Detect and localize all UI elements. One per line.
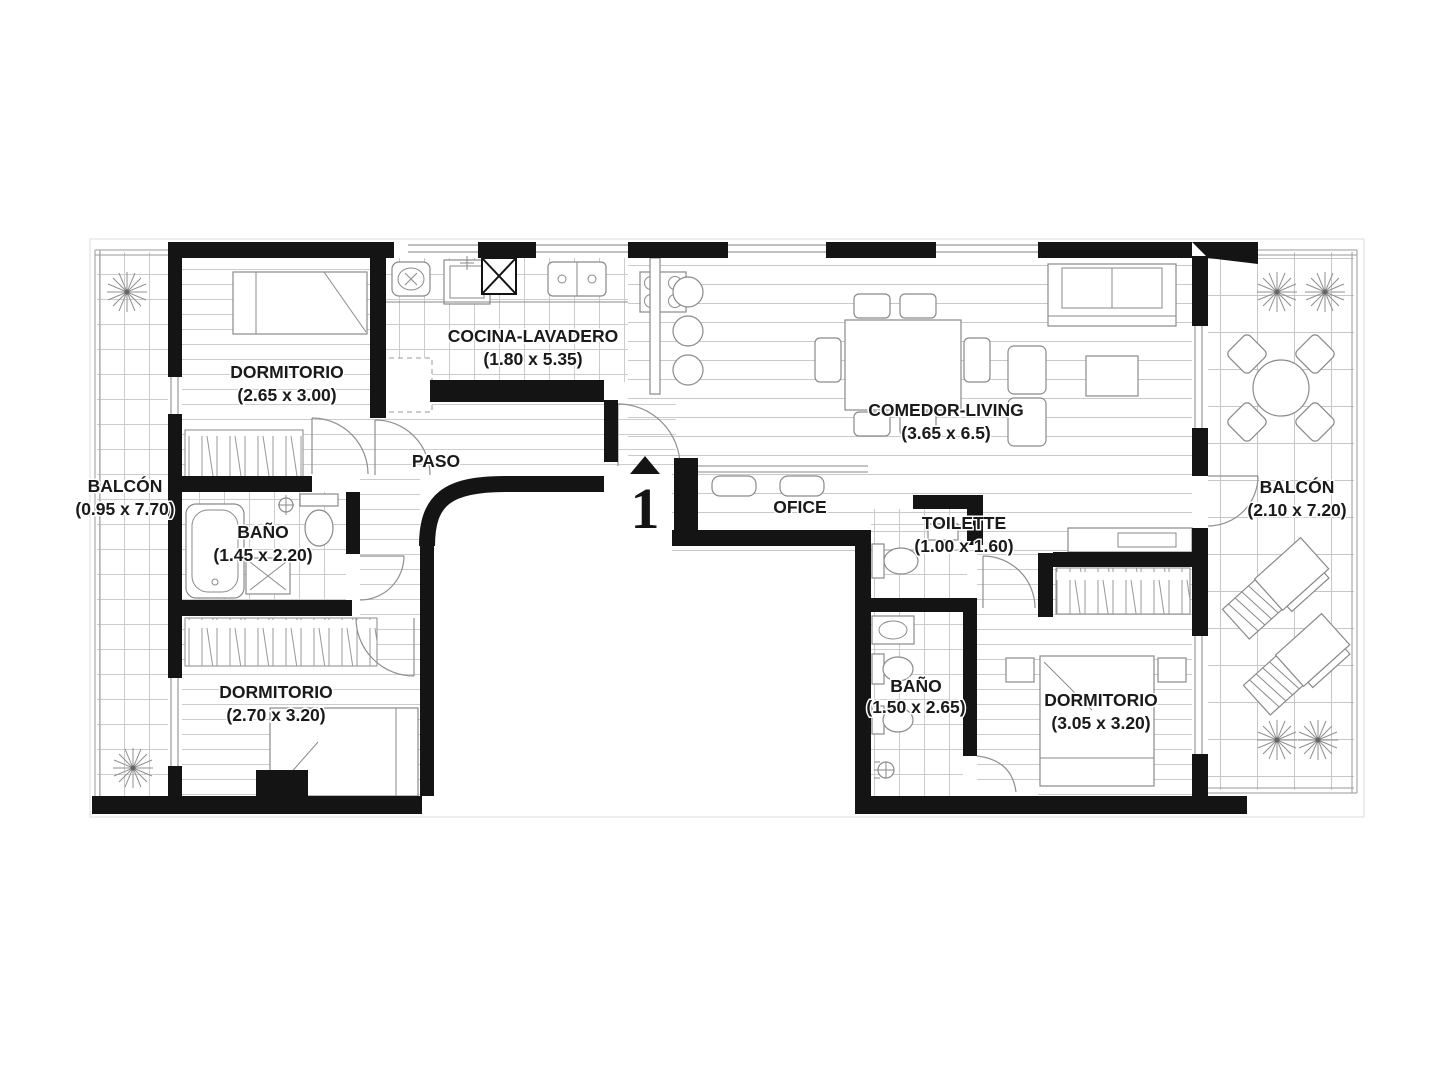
bar-stool [673,355,703,385]
room-label-dormitorio-3: DORMITORIO [1044,690,1157,710]
room-dims-dormitorio-1: (2.65 x 3.00) [237,385,336,405]
appliance-dashed [380,358,432,412]
floor-plan-page: DORMITORIO (2.65 x 3.00) COCINA-LAVADERO… [0,0,1440,1080]
room-dims-dormitorio-3: (3.05 x 3.20) [1051,713,1150,733]
balcony-table [1253,360,1309,416]
plant-icon [1257,272,1297,312]
room-dims-comedor: (3.65 x 6.5) [901,423,991,443]
room-dims-balcon-right: (2.10 x 7.20) [1247,500,1346,520]
plant-icon [1257,720,1297,760]
wardrobe-dormitorio-3 [1056,568,1190,614]
room-dims-bano-2: (1.50 x 2.65) [866,697,965,717]
bar-stool [673,316,703,346]
room-label-bano-2: BAÑO [890,675,942,696]
room-label-balcon-left: BALCÓN [88,475,163,496]
floor-balcon-left [97,252,168,796]
plant-icon [107,272,147,312]
window [936,245,1038,252]
sofa [1048,264,1176,326]
window [408,245,478,252]
coffee-table [1086,356,1138,396]
plant-icon [113,748,153,788]
window [1195,636,1202,754]
window [1195,326,1202,428]
plant-icon [1305,272,1345,312]
shaft-icon [482,258,516,294]
column [256,770,308,796]
room-label-bano-1: BAÑO [237,521,289,542]
tv-console [1068,528,1192,552]
room-label-dormitorio-1: DORMITORIO [230,362,343,382]
window [728,245,826,252]
room-dims-dormitorio-2: (2.70 x 3.20) [226,705,325,725]
unit-number-label: 1 [631,476,660,541]
armchair [1008,346,1046,394]
room-dims-cocina: (1.80 x 5.35) [483,349,582,369]
bed-dormitorio-1 [233,272,367,334]
room-dims-balcon-left: (0.95 x 7.70) [75,499,174,519]
wardrobe-dormitorio-2 [185,618,377,666]
dining-table [845,320,961,410]
room-dims-bano-1: (1.45 x 2.20) [213,545,312,565]
bar-counter [650,258,660,394]
floor-corridor [360,476,420,616]
room-label-cocina: COCINA-LAVADERO [448,326,618,346]
room-label-ofice: OFICE [773,497,826,517]
bar-stool [673,277,703,307]
floor-plan-svg: DORMITORIO (2.65 x 3.00) COCINA-LAVADERO… [0,0,1440,1080]
room-label-balcon-right: BALCÓN [1260,476,1335,497]
room-label-paso: PASO [412,451,460,471]
room-dims-toilette: (1.00 x 1.60) [914,536,1013,556]
plant-icon [1298,720,1338,760]
window [171,678,178,766]
window [171,377,178,414]
room-label-dormitorio-2: DORMITORIO [219,682,332,702]
window [536,245,628,252]
room-label-toilette: TOILETTE [922,513,1006,533]
room-label-comedor: COMEDOR-LIVING [868,400,1024,420]
wardrobe-dormitorio-1 [185,430,303,478]
